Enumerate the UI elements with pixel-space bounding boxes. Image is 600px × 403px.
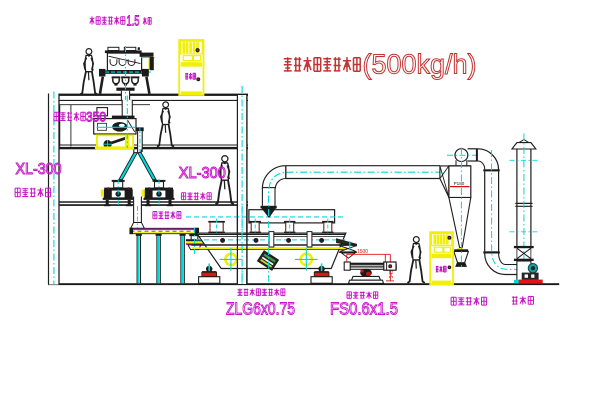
svg-text:1.5: 1.5 (127, 13, 140, 29)
svg-text:P180: P180 (454, 181, 465, 186)
svg-text:345: 345 (389, 270, 395, 279)
svg-text:350: 350 (86, 109, 106, 125)
svg-text:ZLG6x0.75: ZLG6x0.75 (226, 299, 295, 319)
svg-text:XL-300: XL-300 (16, 161, 62, 178)
svg-text:1500: 1500 (357, 249, 368, 255)
svg-text:(500kg/h): (500kg/h) (363, 49, 477, 80)
svg-text:FS0.6x1.5: FS0.6x1.5 (330, 299, 398, 319)
svg-text:XL-300: XL-300 (179, 165, 226, 182)
